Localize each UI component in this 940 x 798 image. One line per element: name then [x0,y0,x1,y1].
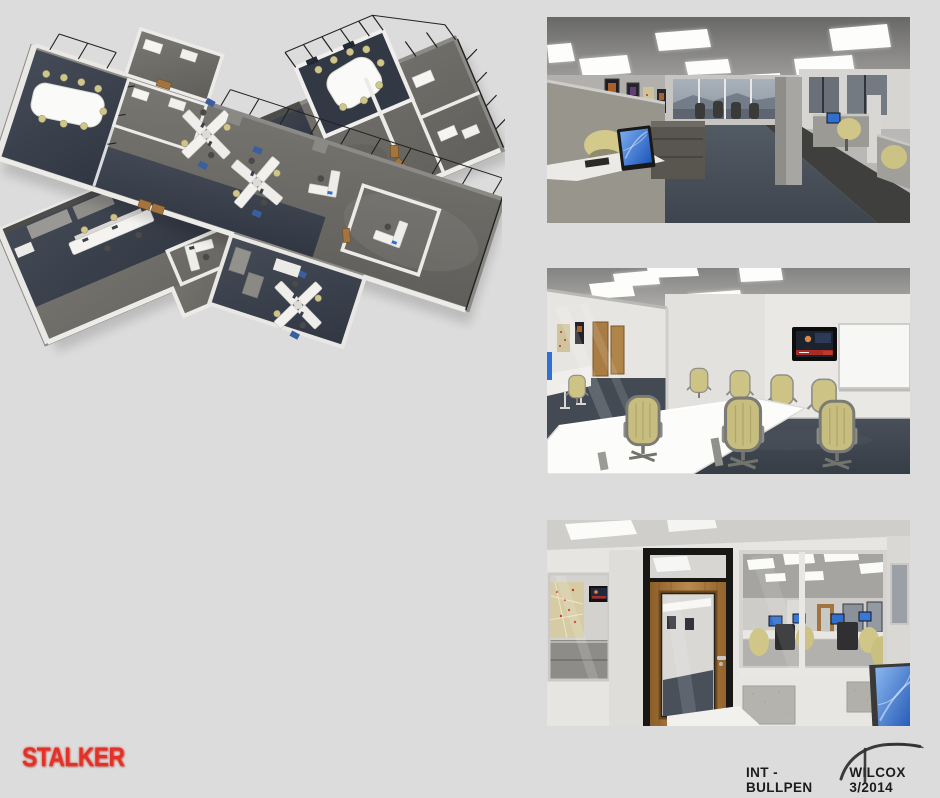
aerial-floorplan-view-2 [0,0,502,360]
door-handle [717,656,726,660]
blue-screen [620,129,652,166]
office-door [643,548,733,726]
task-chair [881,145,907,169]
wall-tv [792,327,837,361]
hall-poster [685,618,694,630]
render-office-door-glass-wall [547,520,910,726]
window-rail [739,668,887,676]
signature-swoosh [828,735,928,785]
column [775,77,802,185]
blue-screen-sliver [547,352,552,380]
set-design-board: STALKER INT - BULLPEN WILCOX 3/2014 [0,0,940,798]
door-glass-insert [660,592,716,718]
monitor-back [837,622,858,650]
computer-monitor [617,125,656,171]
wall [609,550,643,726]
blue-screen [875,666,910,726]
aerial2-scene [0,0,502,360]
render-bullpen-corridor [547,17,910,223]
render-conference-room [547,268,910,474]
blue-screen-small [827,113,840,123]
foreground-monitor [869,663,910,726]
bullpen-glass-wall [739,548,895,676]
show-title-logo: STALKER [22,742,124,773]
file-cabinet [651,121,705,179]
corner-window [891,564,908,624]
blue-screen [859,612,871,621]
whiteboard [839,324,910,390]
task-chair [837,118,861,140]
wood-door [342,228,350,242]
news-anchor [805,336,811,342]
scene-label: INT - BULLPEN [746,765,835,795]
left-glass-window [549,574,609,680]
window-mullion [799,552,805,670]
